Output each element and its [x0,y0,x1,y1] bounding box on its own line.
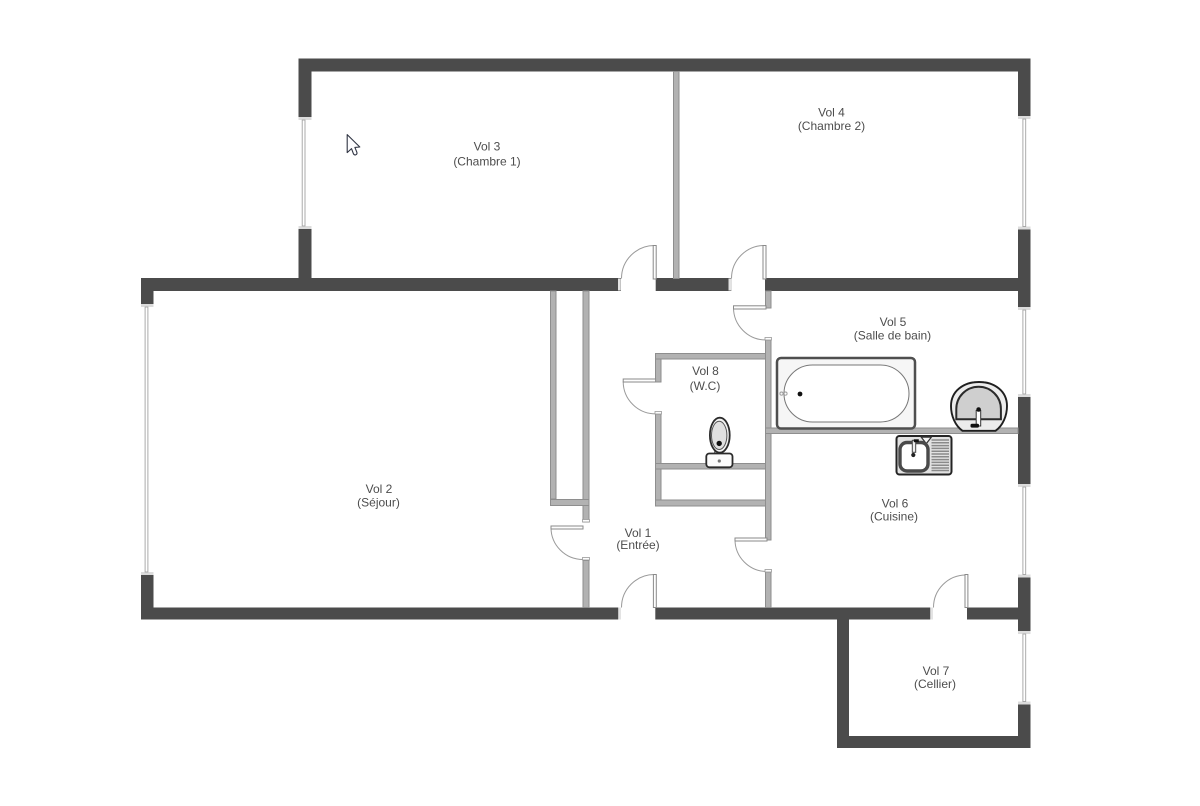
svg-text:Vol 5: Vol 5 [880,315,907,329]
svg-text:(Entrée): (Entrée) [616,538,659,552]
svg-text:Vol 7: Vol 7 [923,664,950,678]
svg-text:(Cellier): (Cellier) [914,677,956,691]
svg-text:Vol 4: Vol 4 [818,106,845,120]
svg-text:(Chambre 2): (Chambre 2) [798,119,865,133]
svg-text:(Cuisine): (Cuisine) [870,510,918,524]
svg-text:(Chambre 1): (Chambre 1) [453,155,520,169]
svg-text:Vol 3: Vol 3 [474,140,501,154]
svg-text:Vol 6: Vol 6 [882,497,909,511]
svg-text:(Salle de bain): (Salle de bain) [854,329,931,343]
svg-text:(Séjour): (Séjour) [357,496,400,510]
svg-text:Vol 2: Vol 2 [366,482,393,496]
svg-text:Vol 8: Vol 8 [692,364,719,378]
svg-text:(W.C): (W.C) [690,379,721,393]
